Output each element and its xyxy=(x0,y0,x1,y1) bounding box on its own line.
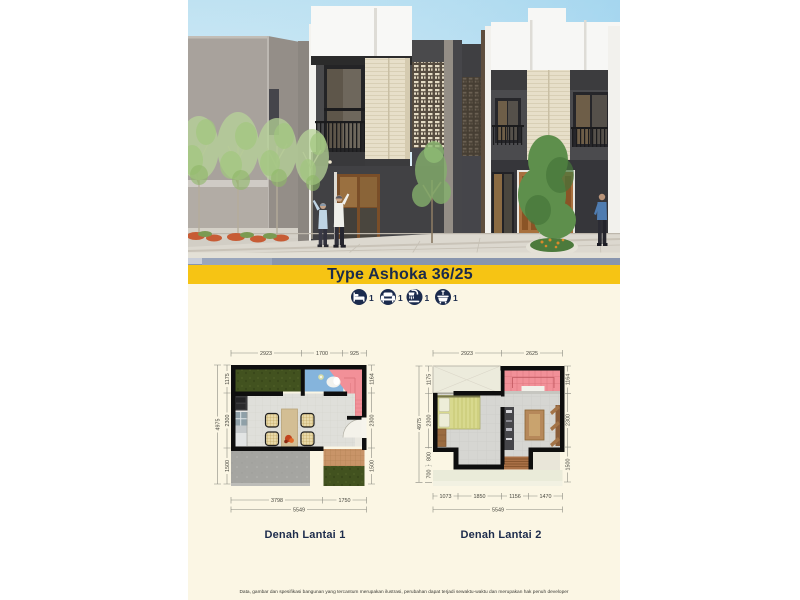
svg-text:1073: 1073 xyxy=(440,494,452,500)
svg-text:1: 1 xyxy=(425,293,430,303)
svg-text:1175: 1175 xyxy=(426,374,432,386)
svg-text:1164: 1164 xyxy=(369,373,375,385)
svg-text:1: 1 xyxy=(369,293,374,303)
svg-text:1750: 1750 xyxy=(339,498,351,504)
svg-text:4975: 4975 xyxy=(417,418,423,430)
svg-text:1164: 1164 xyxy=(565,374,571,386)
svg-text:1500: 1500 xyxy=(369,460,375,472)
svg-text:4975: 4975 xyxy=(215,419,221,431)
svg-text:1: 1 xyxy=(398,293,403,303)
svg-text:925: 925 xyxy=(350,351,359,357)
svg-text:1470: 1470 xyxy=(540,494,552,500)
svg-text:1850: 1850 xyxy=(474,494,486,500)
svg-text:2300: 2300 xyxy=(369,415,375,427)
svg-text:700: 700 xyxy=(426,470,432,479)
svg-text:1500: 1500 xyxy=(565,459,571,471)
svg-text:5549: 5549 xyxy=(293,507,305,513)
svg-text:2923: 2923 xyxy=(260,351,272,357)
svg-text:1175: 1175 xyxy=(225,373,231,385)
svg-text:800: 800 xyxy=(426,452,432,461)
svg-text:2923: 2923 xyxy=(461,351,473,357)
svg-text:2300: 2300 xyxy=(426,415,432,427)
svg-text:1700: 1700 xyxy=(316,351,328,357)
svg-text:1156: 1156 xyxy=(509,494,521,500)
svg-text:2625: 2625 xyxy=(526,351,538,357)
svg-text:1: 1 xyxy=(453,293,458,303)
svg-text:2300: 2300 xyxy=(565,414,571,426)
svg-text:2300: 2300 xyxy=(225,415,231,427)
svg-text:1500: 1500 xyxy=(225,460,231,472)
svg-text:5549: 5549 xyxy=(492,507,504,513)
svg-text:3798: 3798 xyxy=(271,498,283,504)
